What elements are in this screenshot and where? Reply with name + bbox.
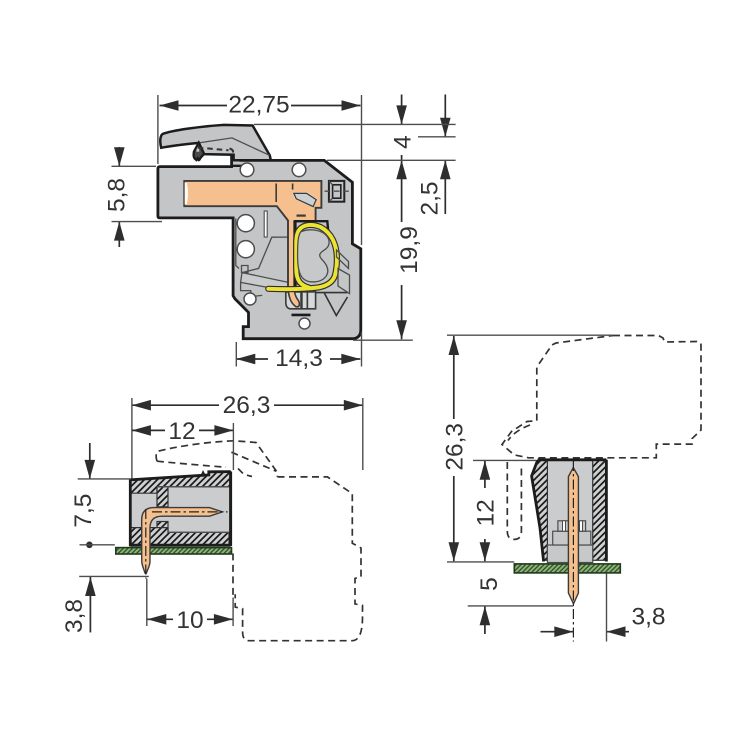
svg-text:22,75: 22,75: [228, 92, 289, 119]
svg-text:26,3: 26,3: [441, 423, 468, 471]
svg-text:26,3: 26,3: [223, 392, 271, 419]
svg-text:10: 10: [176, 607, 203, 634]
svg-text:7,5: 7,5: [70, 494, 97, 528]
svg-text:3,8: 3,8: [61, 599, 88, 633]
svg-text:19,9: 19,9: [396, 226, 423, 274]
svg-text:14,3: 14,3: [275, 345, 323, 372]
svg-text:12: 12: [168, 418, 195, 445]
svg-text:2,5: 2,5: [416, 181, 443, 215]
svg-text:4: 4: [389, 135, 416, 149]
svg-text:5,8: 5,8: [103, 178, 130, 212]
svg-text:5: 5: [476, 577, 503, 591]
svg-text:3,8: 3,8: [631, 604, 665, 631]
svg-text:12: 12: [473, 499, 500, 526]
